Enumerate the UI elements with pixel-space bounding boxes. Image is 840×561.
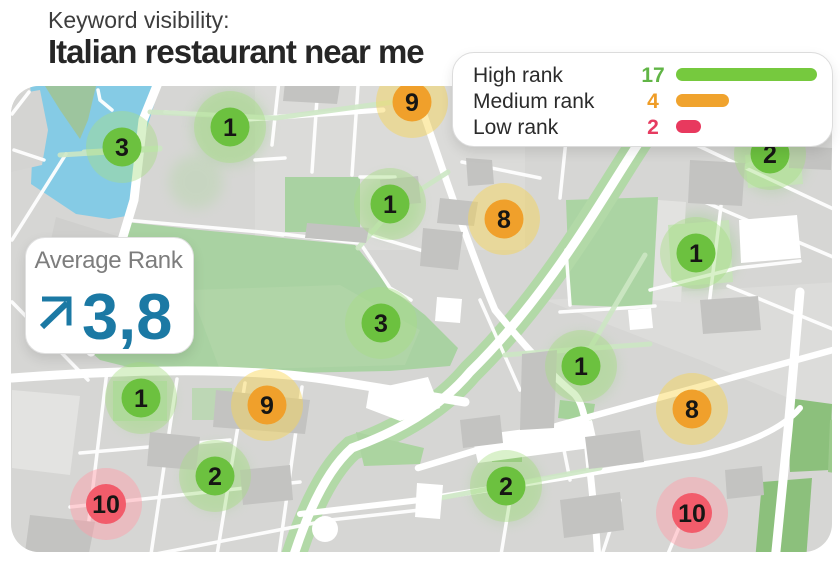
svg-text:3: 3 bbox=[374, 310, 388, 338]
svg-text:3: 3 bbox=[115, 134, 129, 162]
svg-text:1: 1 bbox=[689, 240, 703, 268]
svg-text:10: 10 bbox=[92, 491, 120, 519]
svg-text:2: 2 bbox=[499, 473, 513, 501]
svg-text:8: 8 bbox=[497, 206, 511, 234]
svg-text:1: 1 bbox=[134, 385, 148, 413]
svg-text:1: 1 bbox=[383, 191, 397, 219]
svg-text:2: 2 bbox=[208, 463, 222, 491]
svg-text:9: 9 bbox=[405, 89, 419, 117]
svg-text:1: 1 bbox=[574, 353, 588, 381]
svg-text:10: 10 bbox=[678, 500, 706, 528]
svg-text:9: 9 bbox=[260, 392, 274, 420]
svg-text:1: 1 bbox=[223, 114, 237, 142]
svg-text:8: 8 bbox=[685, 396, 699, 424]
